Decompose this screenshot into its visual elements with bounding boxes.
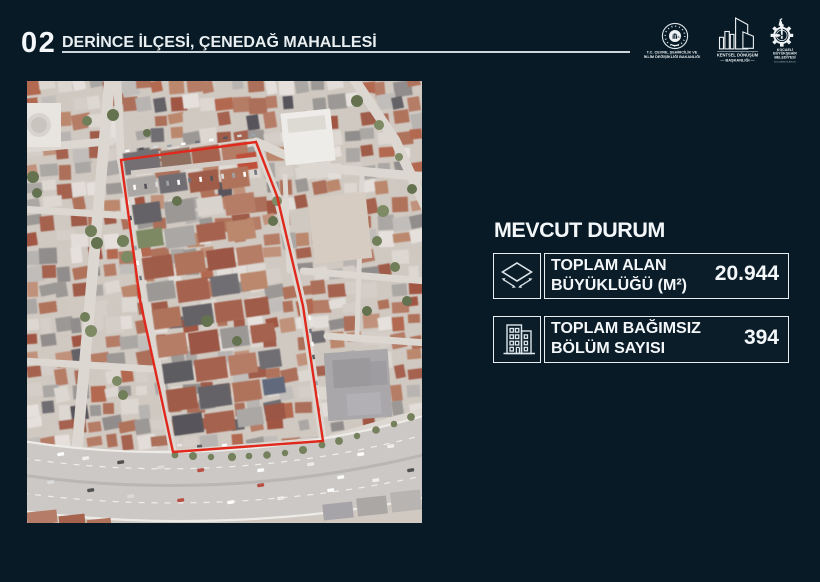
svg-text:— BAŞKANLIĞI —: — BAŞKANLIĞI — [720, 57, 754, 62]
svg-text:KULLANIM KILAVUZU: KULLANIM KILAVUZU [774, 60, 797, 63]
svg-text:İKLİM DEĞİŞİKLİĞİ BAKANLIĞI: İKLİM DEĞİŞİKLİĞİ BAKANLIĞI [644, 54, 701, 59]
svg-text:BELEDİYESİ: BELEDİYESİ [774, 55, 795, 59]
svg-text:T.C. ÇEVRE, ŞEHİRCİLİK VE: T.C. ÇEVRE, ŞEHİRCİLİK VE [647, 51, 698, 55]
